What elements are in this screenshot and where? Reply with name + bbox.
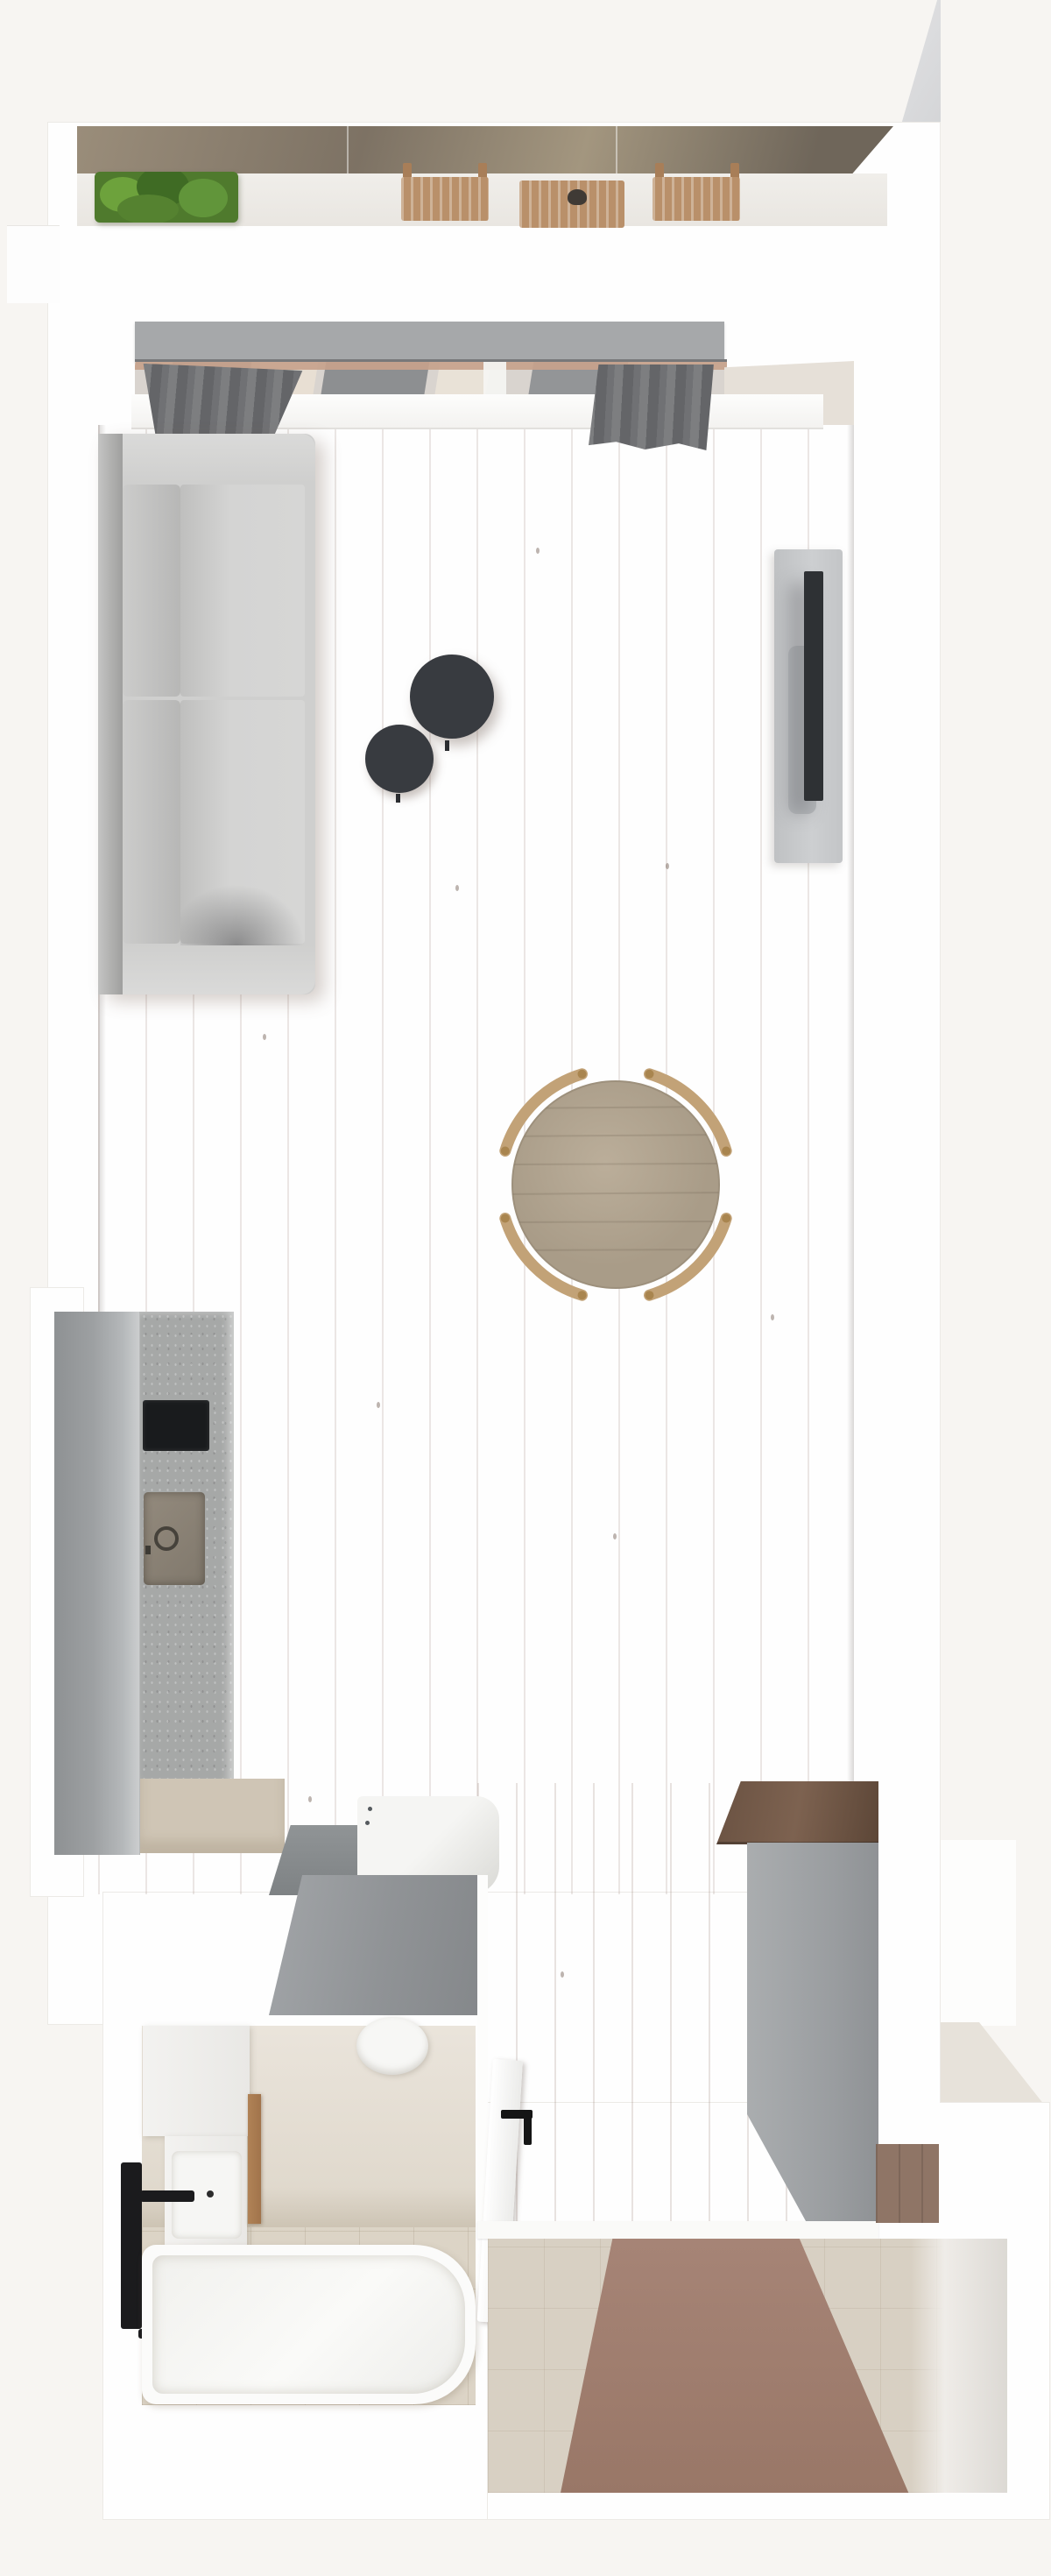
coffee-table-leg xyxy=(396,794,400,803)
railing-pane-divider xyxy=(347,126,349,173)
patio-chair-left xyxy=(401,177,489,221)
kitchen-tall-cabinet xyxy=(54,1312,140,1855)
floor-knot xyxy=(536,548,540,554)
floor-knot xyxy=(561,1971,564,1978)
entry-threshold xyxy=(477,2221,878,2239)
floor-knot xyxy=(455,885,459,891)
coffee-table-small xyxy=(365,725,434,793)
basin-drain xyxy=(207,2190,214,2197)
vestibule-far-wall xyxy=(911,2239,1007,2493)
plant-leaf-blob xyxy=(117,195,179,223)
sofa-backrest xyxy=(98,434,123,994)
kitchen-faucet-handle xyxy=(145,1546,151,1554)
floor-knot xyxy=(771,1314,774,1320)
coffee-table-leg xyxy=(445,740,449,751)
basin-faucet-arm xyxy=(140,2190,194,2202)
floor-knot xyxy=(263,1034,266,1040)
sofa xyxy=(98,434,315,994)
floor-knot xyxy=(666,863,669,869)
door-handle-nub xyxy=(524,2110,532,2145)
entry-wardrobe-wood-top xyxy=(716,1781,878,1844)
bathroom-vanity-cabinet xyxy=(143,2026,250,2136)
curtain-right xyxy=(589,364,714,450)
bathtub-basin xyxy=(152,2255,465,2394)
apartment-render xyxy=(0,0,1051,2576)
towel-radiator xyxy=(121,2162,142,2329)
toilet xyxy=(356,2017,428,2075)
front-wall-left-step xyxy=(7,226,60,303)
window-pelmet xyxy=(135,322,724,362)
sofa-back-cushion xyxy=(123,700,180,944)
kitchen-beige-counter xyxy=(140,1779,285,1853)
tv-screen xyxy=(804,571,823,801)
right-wall-band xyxy=(854,377,940,1783)
dining-table-top xyxy=(512,1081,719,1288)
patio-chair-right xyxy=(652,177,740,221)
kitchen-faucet xyxy=(154,1526,179,1551)
balcony-planter-plant xyxy=(95,172,238,223)
patio-table-kettle xyxy=(568,189,587,205)
plant-leaf-blob xyxy=(179,179,228,217)
right-wall-inner-shadow xyxy=(847,425,854,1783)
floor-knot xyxy=(377,1402,380,1408)
window-mullion xyxy=(483,362,506,399)
vestibule-wood-band xyxy=(876,2144,939,2223)
bathtub xyxy=(142,2245,476,2404)
sofa-back-cushion xyxy=(123,485,180,697)
bathroom-wood-ladder xyxy=(248,2094,261,2224)
sofa-armrest-top xyxy=(98,434,315,483)
sofa-seat-cushion xyxy=(180,485,305,697)
railing-pane-divider xyxy=(616,126,617,173)
sofa-seat-shadow xyxy=(180,884,305,945)
washer-knob xyxy=(365,1821,370,1825)
floor-knot xyxy=(613,1533,617,1539)
right-exterior-wall-strip xyxy=(940,1840,1016,2026)
sofa-armrest-bottom xyxy=(98,945,315,994)
kitchen-front-panel xyxy=(269,1875,477,2015)
dining-set xyxy=(486,1056,745,1315)
coffee-table-large xyxy=(410,655,494,739)
kitchen-cooktop xyxy=(143,1400,209,1451)
floor-knot xyxy=(308,1796,312,1802)
washer-knob xyxy=(368,1807,372,1811)
